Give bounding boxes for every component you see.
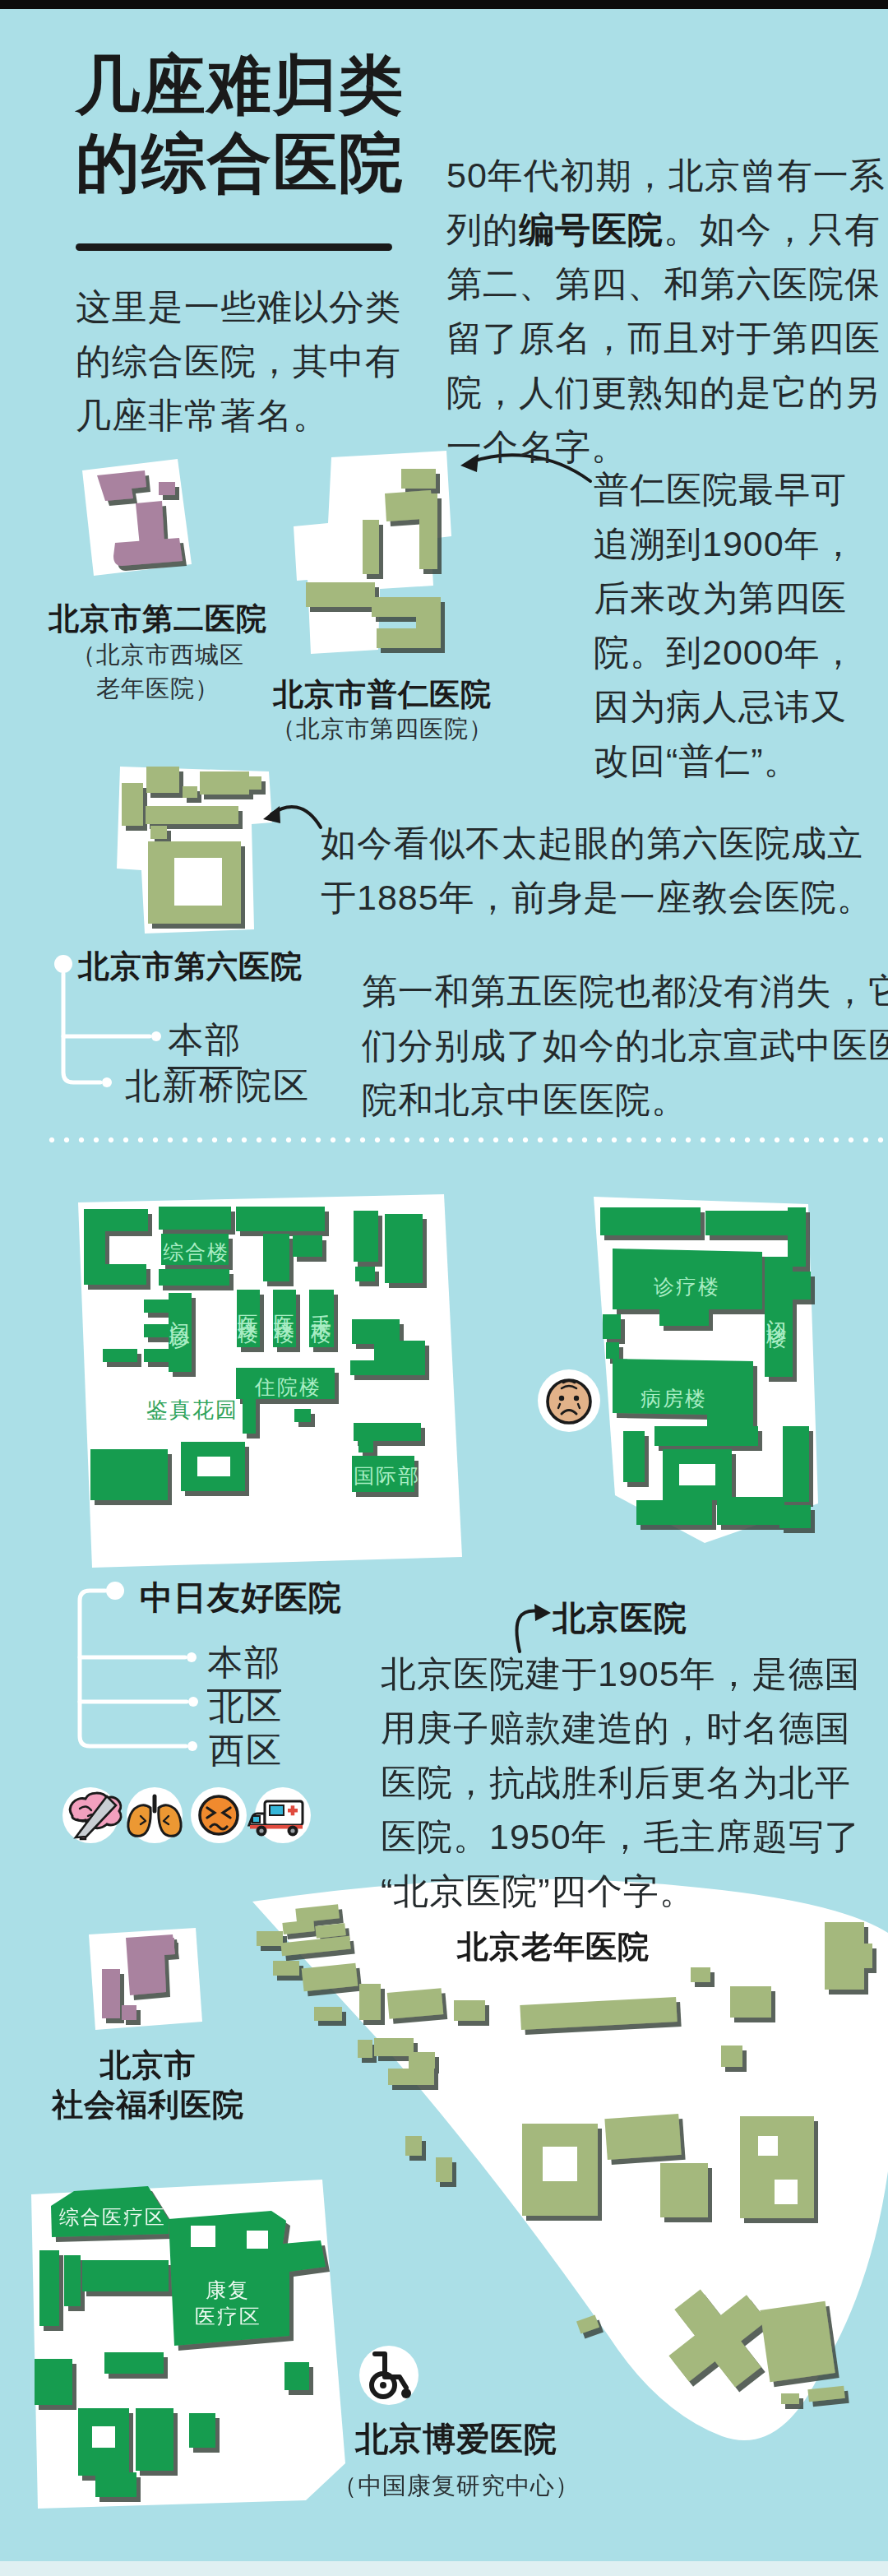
wheelchair-icon bbox=[359, 2346, 419, 2405]
boai-alias: （中国康复研究中心） bbox=[317, 2469, 596, 2503]
boai-name: 北京博爱医院 bbox=[349, 2416, 563, 2462]
zhongri-bld-yijilou-1: 医技楼 bbox=[238, 1298, 258, 1310]
beijing-bld-zhenliaolou: 诊疗楼 bbox=[654, 1273, 720, 1300]
hospital-no2-name: 北京市第二医院 bbox=[35, 599, 281, 640]
zhongri-garden-label: 鉴真花园 bbox=[146, 1396, 238, 1425]
infographic-canvas: 几座难归类 的综合医院 这里是一些难以分类的综合医院，其中有几座非常著名。 50… bbox=[0, 0, 888, 2576]
zhongri-bld-yijilou-2: 医技楼 bbox=[274, 1298, 294, 1310]
beijing-bld-bingfanglou: 病房楼 bbox=[641, 1385, 707, 1412]
paragraph-bold: 编号医院 bbox=[519, 210, 664, 249]
no6-branch-beixinqiao: 北新桥院区 bbox=[125, 1063, 310, 1110]
puren-name: 北京市普仁医院 bbox=[271, 674, 493, 716]
hospital-no2-alias: （北京市西城区 老年医院） bbox=[59, 638, 257, 706]
intro-text: 这里是一些难以分类的综合医院，其中有几座非常著名。 bbox=[76, 280, 406, 442]
title-rule bbox=[76, 243, 392, 251]
zhongri-bld-menjizhen: 门急诊 bbox=[169, 1304, 190, 1317]
map-fuli bbox=[89, 1928, 202, 2030]
zhongri-branch-beiqu: 北区 bbox=[209, 1684, 283, 1731]
no6-branch-benbu: 本部 bbox=[168, 1017, 242, 1069]
zhongri-branch-xiqu: 西区 bbox=[209, 1727, 283, 1775]
map-hospital-no2 bbox=[82, 459, 192, 576]
boai-zone-kangfu-line2: 医疗区 bbox=[195, 2303, 261, 2330]
bottom-strip bbox=[0, 2561, 888, 2576]
page-title-line1: 几座难归类 bbox=[76, 46, 405, 124]
hospital-no2-alias-line2: 老年医院） bbox=[59, 672, 257, 706]
numbered-hospitals-paragraph: 50年代初期，北京曾有一系列的编号医院。如今，只有第二、第四、和第六医院保留了原… bbox=[446, 148, 888, 474]
sick-face-icon bbox=[200, 1796, 238, 1834]
puren-note: 普仁医院最早可追溯到1900年，后来改为第四医院。到2000年，因为病人忌讳又改… bbox=[594, 462, 857, 788]
zhongri-bld-guojibu: 国际部 bbox=[354, 1462, 420, 1490]
map-puren bbox=[294, 451, 451, 654]
boai-zone-zonghe: 综合医疗区 bbox=[59, 2204, 166, 2231]
hospital-no2-alias-line1: （北京市西城区 bbox=[59, 638, 257, 672]
beijing-note: 北京医院建于1905年，是德国用庚子赔款建造的，时名德国医院，抗战胜利后更名为北… bbox=[381, 1647, 874, 1918]
boai-zone-kangfu-line1: 康复 bbox=[206, 2277, 250, 2304]
arrow-to-no6 bbox=[263, 806, 321, 827]
no6-note: 如今看似不太起眼的第六医院成立于1885年，前身是一座教会医院。 bbox=[321, 816, 888, 924]
map-beijing-hospital bbox=[594, 1197, 818, 1543]
map-hospital-no6 bbox=[117, 767, 272, 934]
fuli-name-line1: 北京市 bbox=[66, 2045, 230, 2087]
beijing-bld-menzhenlou: 门诊楼 bbox=[766, 1303, 787, 1315]
arrow-to-beijing-label bbox=[516, 1604, 551, 1652]
zhongri-bld-zhuyuanlou: 住院楼 bbox=[255, 1374, 321, 1401]
page-title-line2: 的综合医院 bbox=[76, 124, 405, 202]
fuli-name-line2: 社会福利医院 bbox=[45, 2084, 251, 2126]
elder-face-icon bbox=[538, 1369, 600, 1432]
zhongri-name: 中日友好医院 bbox=[140, 1575, 342, 1620]
no6-name: 北京市第六医院 bbox=[78, 946, 303, 988]
dept-icons bbox=[62, 1787, 311, 1843]
zhongri-bld-shoushulou: 手术楼 bbox=[311, 1298, 331, 1310]
puren-alias: （北京市第四医院） bbox=[271, 712, 493, 746]
page-title: 几座难归类 的综合医院 bbox=[76, 46, 405, 202]
beijing-name: 北京医院 bbox=[553, 1596, 687, 1641]
dotted-divider bbox=[48, 1135, 888, 1145]
no1-no5-note: 第一和第五医院也都没有消失，它们分别成了如今的北京宣武中医医院和北京中医医院。 bbox=[362, 964, 888, 1127]
laonian-name: 北京老年医院 bbox=[457, 1926, 650, 1968]
zhongri-bld-zonghelou: 综合楼 bbox=[163, 1239, 227, 1266]
